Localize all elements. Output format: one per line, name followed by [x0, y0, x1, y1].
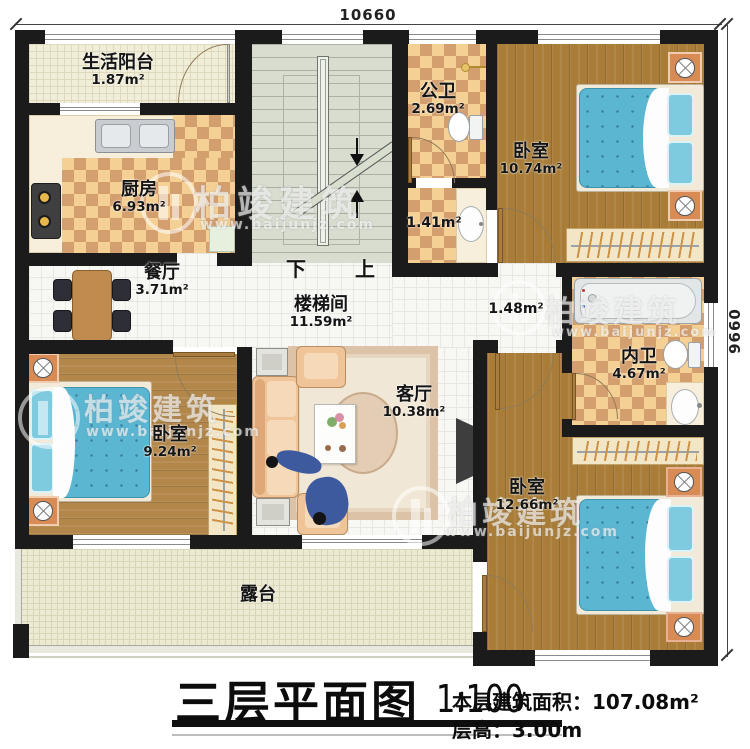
watermark-site: www.baijunjz.com — [200, 217, 375, 233]
room-name: 卧室 — [496, 478, 559, 498]
toilet-bowl — [663, 340, 688, 369]
room-name: 卧室 — [500, 142, 563, 162]
armchair — [296, 346, 346, 388]
room-label-wash-area: 1.41m² — [406, 216, 461, 232]
room-name: 生活阳台 — [82, 53, 154, 73]
balcony-door-leaf — [227, 44, 230, 103]
wall — [473, 632, 487, 666]
room-label-terrace: 露台 — [240, 585, 276, 605]
floor-plan-sheet: 柏竣建筑 www.baijunjz.com 柏竣建筑 www.baijunjz.… — [0, 0, 750, 749]
sofa-cushion — [267, 381, 296, 417]
cup-icon — [325, 445, 331, 451]
room-area: 10.74m² — [500, 162, 563, 177]
floor-height-text: 层高：3.00m — [452, 714, 582, 743]
toilet-tank — [688, 342, 701, 368]
wall — [15, 535, 73, 549]
room-label-bedroom-w: 卧室 9.24m² — [143, 425, 196, 460]
side-table — [256, 348, 288, 376]
dining-chair — [112, 310, 131, 332]
room-area: 6.93m² — [112, 200, 165, 215]
faucet-icon — [697, 403, 702, 408]
kitchen-sink-basin-left — [101, 124, 131, 148]
room-area: 11.59m² — [290, 315, 353, 330]
kitchen-sink-basin-right — [139, 124, 169, 148]
room-area: 1.87m² — [82, 73, 154, 88]
nightstand — [27, 496, 59, 526]
room-name: 内卫 — [612, 347, 665, 367]
room-area: 1.48m² — [488, 302, 543, 318]
room-name: 餐厅 — [135, 263, 188, 283]
room-name: 客厅 — [383, 385, 446, 405]
wall — [562, 425, 704, 437]
window — [45, 30, 237, 44]
watermark-logo-icon — [392, 486, 450, 546]
room-area: 4.67m² — [612, 367, 665, 382]
room-area: 12.66m² — [496, 498, 559, 513]
wall — [452, 178, 487, 188]
wardrobe — [572, 437, 704, 465]
stair-arrow-down-stem — [356, 138, 358, 154]
bed-pillow — [667, 141, 694, 185]
wall — [217, 253, 252, 266]
terrace-post — [13, 624, 29, 658]
room-name: 卧室 — [143, 425, 196, 445]
toilet-tank — [469, 115, 483, 140]
nightstand — [666, 612, 702, 642]
room-label-inner-bath: 内卫 4.67m² — [612, 347, 665, 382]
room-label-bedroom-ne: 卧室 10.74m² — [500, 142, 563, 177]
room-name: 露台 — [240, 585, 276, 605]
person-head — [266, 456, 278, 468]
wall — [486, 30, 497, 210]
bathroom-sink — [671, 389, 699, 425]
armchair-cushion — [304, 353, 338, 379]
shower-head-icon — [461, 63, 470, 72]
nightstand — [668, 190, 702, 221]
stair-down-label: 下 — [286, 258, 306, 280]
room-name: 楼梯间 — [290, 295, 353, 315]
bed-sheet — [643, 88, 669, 188]
nightstand — [666, 467, 702, 497]
wall — [556, 263, 718, 277]
room-label-hallway: 1.48m² — [488, 302, 543, 318]
room-label-bedroom-se: 卧室 12.66m² — [496, 478, 559, 513]
wall — [237, 347, 252, 535]
flower-icon — [339, 422, 346, 429]
dimension-height: 9660 — [726, 293, 744, 369]
window — [535, 650, 650, 666]
room-area: 3.71m² — [135, 283, 188, 298]
room-area: 1.41m² — [406, 216, 461, 232]
bed-pillow — [667, 505, 694, 552]
room-name: 厨房 — [112, 180, 165, 200]
stove-burner-icon — [38, 215, 51, 228]
terrace-edge-line — [15, 656, 473, 658]
watermark-site: www.baijunjz.com — [444, 524, 619, 540]
wall — [556, 340, 572, 353]
stair-up-label: 上 — [355, 258, 375, 280]
room-label-kitchen: 厨房 6.93m² — [112, 180, 165, 215]
window — [282, 30, 363, 44]
wardrobe — [566, 228, 704, 262]
room-area: 9.24m² — [143, 445, 196, 460]
window — [60, 103, 140, 115]
person-head — [313, 512, 326, 525]
window — [538, 30, 660, 44]
bed-pillow — [667, 556, 694, 603]
coffee-table — [314, 404, 356, 464]
cup-icon — [339, 445, 346, 452]
watermark-brand: 柏竣建筑 — [84, 385, 220, 429]
flower-icon — [335, 413, 344, 422]
bed-pillow — [667, 93, 694, 137]
lamp-icon — [674, 617, 694, 637]
room-label-stairwell: 楼梯间 11.59m² — [290, 295, 353, 330]
dining-chair — [112, 279, 131, 301]
window — [409, 30, 476, 44]
window — [73, 535, 190, 549]
room-label-living: 客厅 10.38m² — [383, 385, 446, 420]
nightstand — [27, 353, 59, 383]
dining-table — [72, 270, 112, 341]
watermark-site: www.baijunjz.com — [552, 325, 717, 340]
room-label-balcony: 生活阳台 1.87m² — [82, 53, 154, 88]
tv — [456, 418, 473, 484]
wall — [392, 263, 498, 277]
floor-area-text: 本层建筑面积：107.08m² — [452, 686, 699, 715]
faucet-icon — [479, 222, 483, 226]
dimension-line-top — [15, 24, 722, 25]
nightstand — [668, 52, 702, 83]
terrace-railing-bottom — [15, 645, 473, 653]
dimension-width: 10660 — [328, 6, 408, 24]
lamp-icon — [33, 501, 53, 521]
room-area: 10.38m² — [383, 405, 446, 420]
wall — [190, 535, 302, 549]
wall — [15, 340, 173, 354]
room-label-dining: 餐厅 3.71m² — [135, 263, 188, 298]
watermark-logo-icon — [18, 387, 80, 449]
dining-chair — [53, 279, 72, 301]
lamp-icon — [675, 196, 695, 216]
side-table — [256, 498, 290, 526]
room-name: 公卫 — [411, 82, 464, 102]
lamp-icon — [33, 358, 53, 378]
stair-arrow-down-icon — [350, 154, 364, 166]
stove-burner-icon — [38, 191, 51, 204]
lamp-icon — [674, 472, 694, 492]
room-area: 2.69m² — [411, 102, 464, 117]
bed-pillow — [30, 443, 54, 493]
dining-chair — [53, 310, 72, 332]
room-label-public-bath: 公卫 2.69m² — [411, 82, 464, 117]
lamp-icon — [675, 58, 695, 78]
floor-kitchen-2 — [173, 115, 235, 158]
